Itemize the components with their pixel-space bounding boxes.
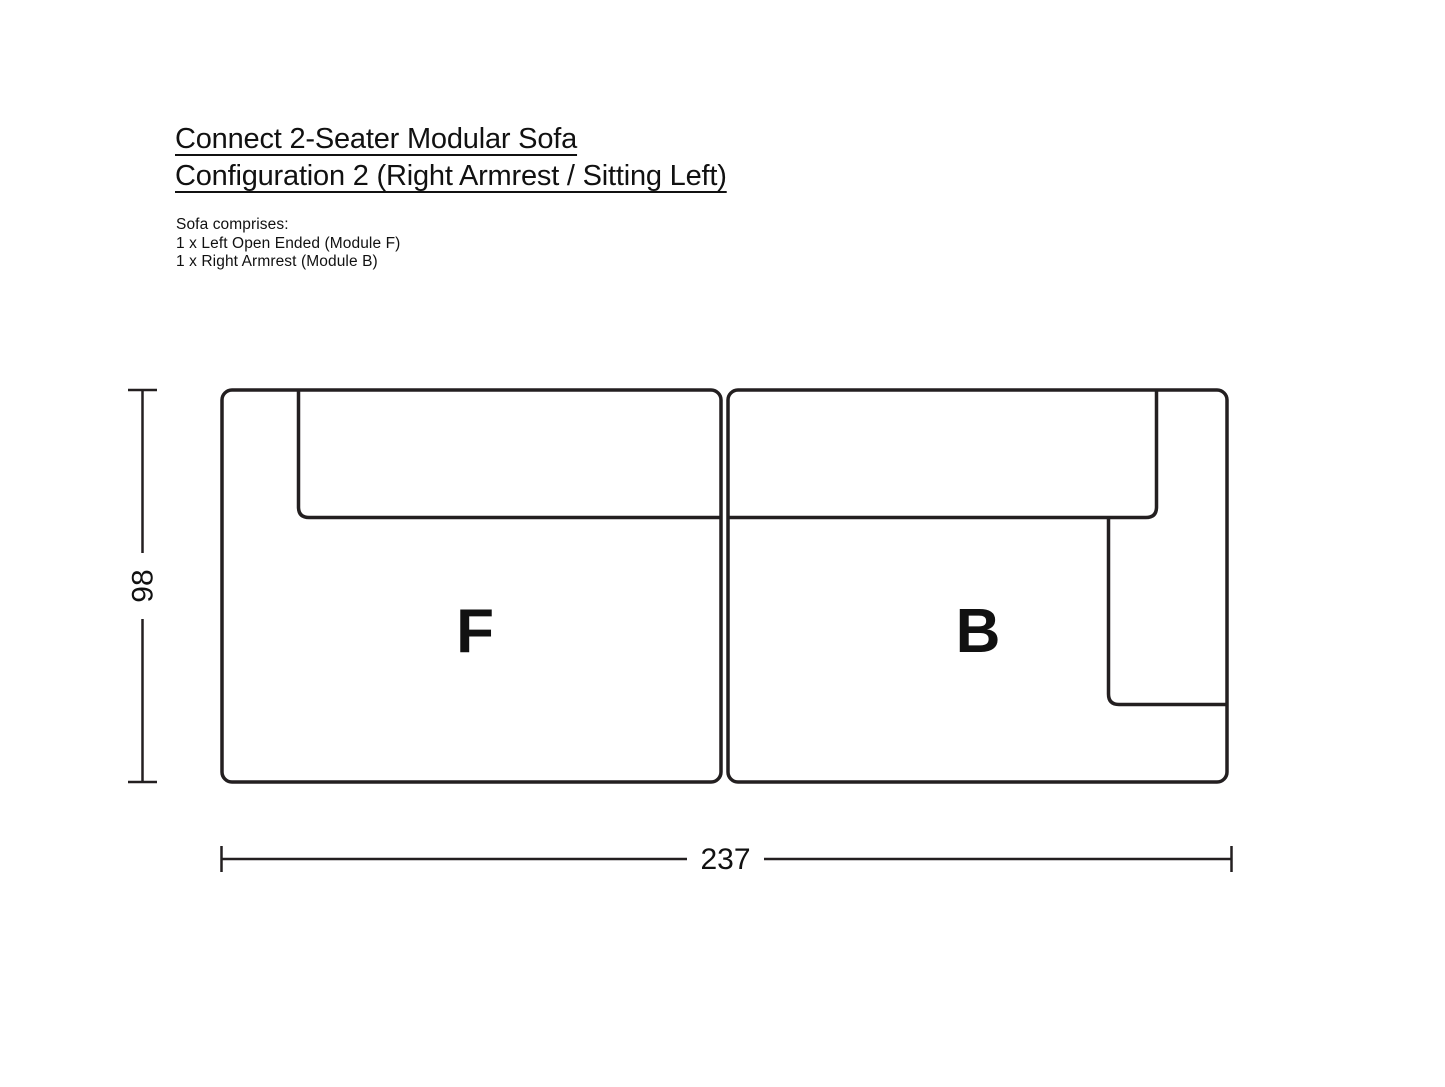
width-dimension: 237 [222, 843, 1232, 876]
module-f-label: F [456, 597, 494, 666]
module-f: F [222, 390, 721, 782]
width-dimension-value: 237 [700, 843, 750, 876]
module-b: B [728, 390, 1227, 782]
spec-sheet-page: Connect 2-Seater Modular Sofa Configurat… [0, 0, 1445, 1087]
sofa-top-view-diagram: F B 98 237 [0, 0, 1445, 1087]
depth-dimension-value: 98 [127, 569, 160, 602]
module-b-label: B [956, 597, 1001, 666]
depth-dimension: 98 [127, 390, 160, 782]
module-b-outline [728, 390, 1227, 782]
